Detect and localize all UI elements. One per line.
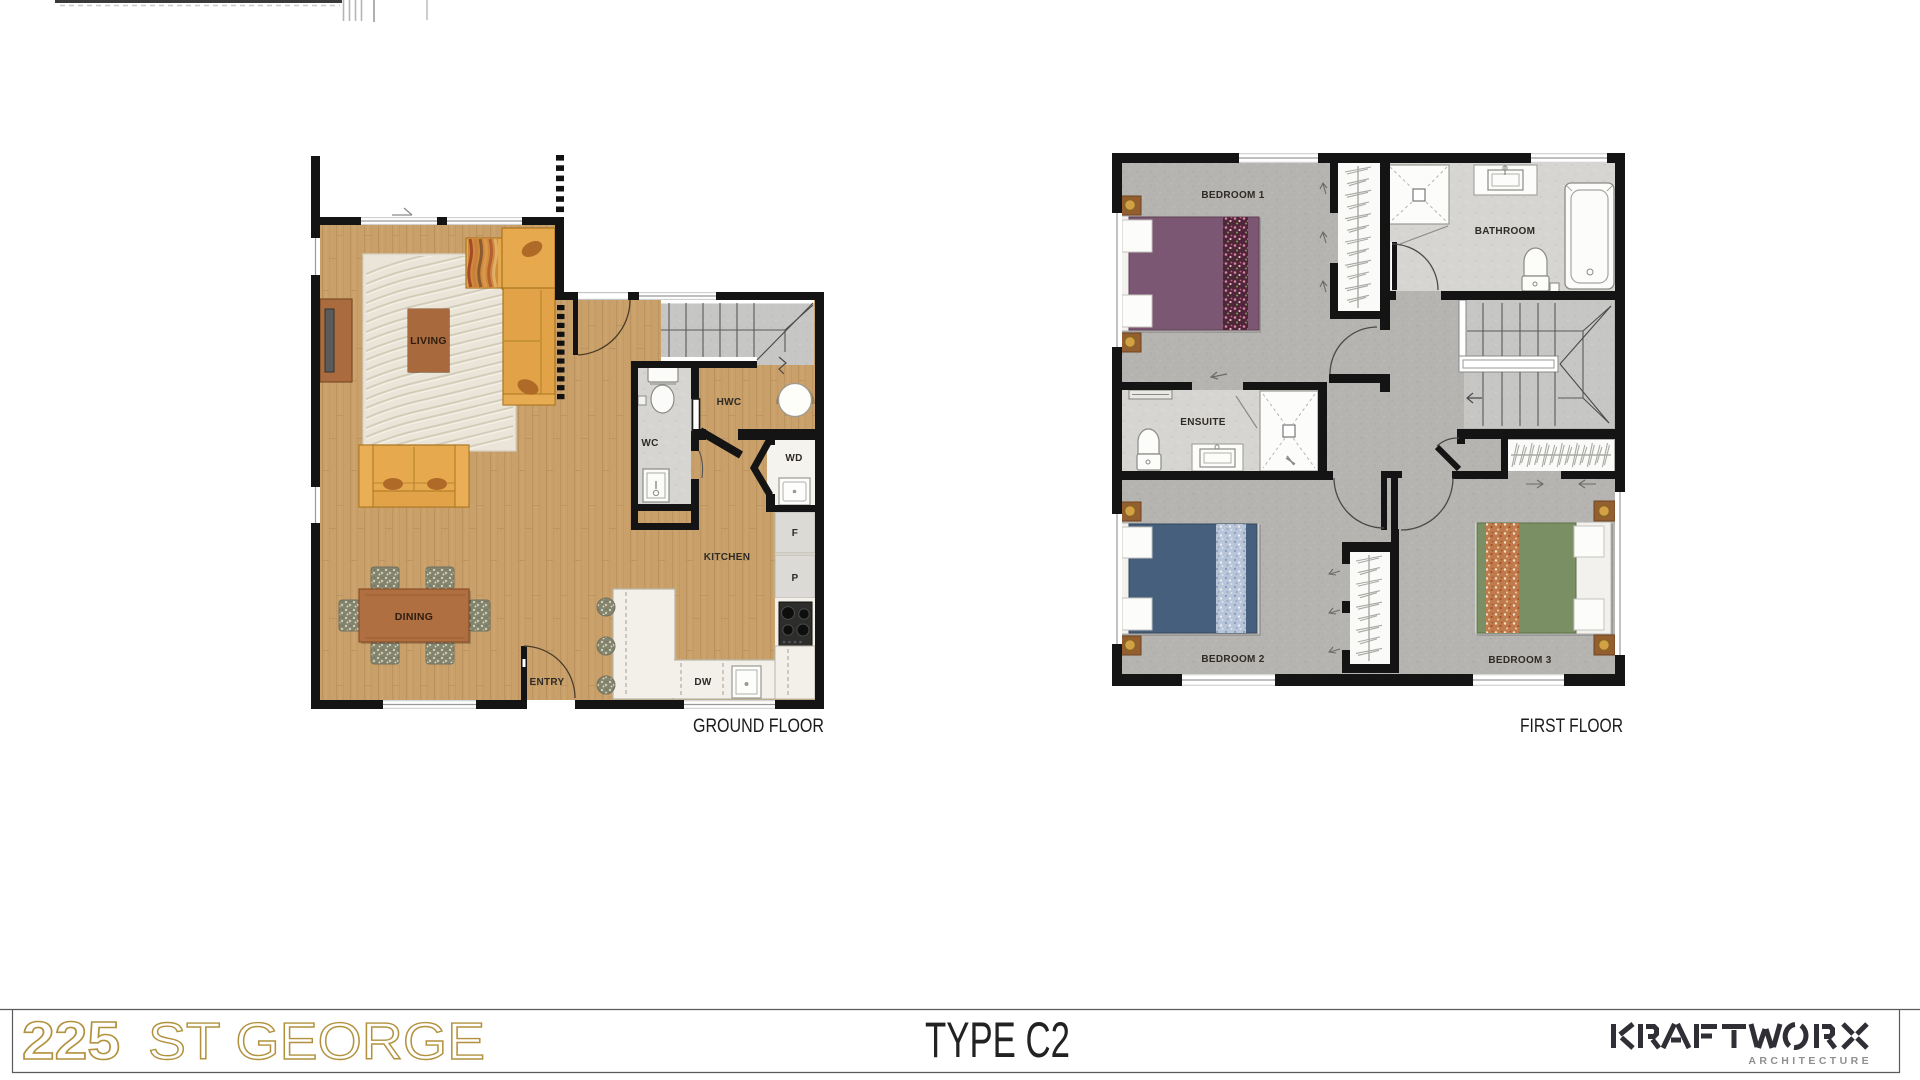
svg-text:BEDROOM 2: BEDROOM 2 (1201, 654, 1264, 665)
svg-text:GROUND FLOOR: GROUND FLOOR (693, 715, 824, 737)
svg-text:DW: DW (694, 677, 712, 688)
svg-text:ENSUITE: ENSUITE (1180, 417, 1225, 428)
svg-text:LIVING: LIVING (410, 335, 447, 347)
svg-text:BEDROOM 1: BEDROOM 1 (1201, 190, 1264, 201)
svg-text:WD: WD (785, 453, 802, 464)
svg-text:KITCHEN: KITCHEN (704, 552, 751, 563)
svg-text:DINING: DINING (395, 611, 434, 623)
svg-text:225: 225 (22, 1011, 120, 1071)
svg-text:TYPE C2: TYPE C2 (925, 1012, 1070, 1068)
svg-text:ST GEORGE: ST GEORGE (148, 1013, 485, 1071)
svg-text:HWC: HWC (717, 397, 742, 408)
svg-text:BATHROOM: BATHROOM (1475, 226, 1536, 237)
svg-text:WC: WC (641, 438, 658, 449)
svg-text:BEDROOM 3: BEDROOM 3 (1488, 655, 1551, 666)
svg-text:FIRST FLOOR: FIRST FLOOR (1520, 715, 1623, 737)
svg-text:ENTRY: ENTRY (529, 677, 564, 688)
svg-text:ARCHITECTURE: ARCHITECTURE (1748, 1055, 1872, 1067)
svg-text:P: P (792, 573, 799, 584)
svg-text:F: F (792, 528, 798, 539)
